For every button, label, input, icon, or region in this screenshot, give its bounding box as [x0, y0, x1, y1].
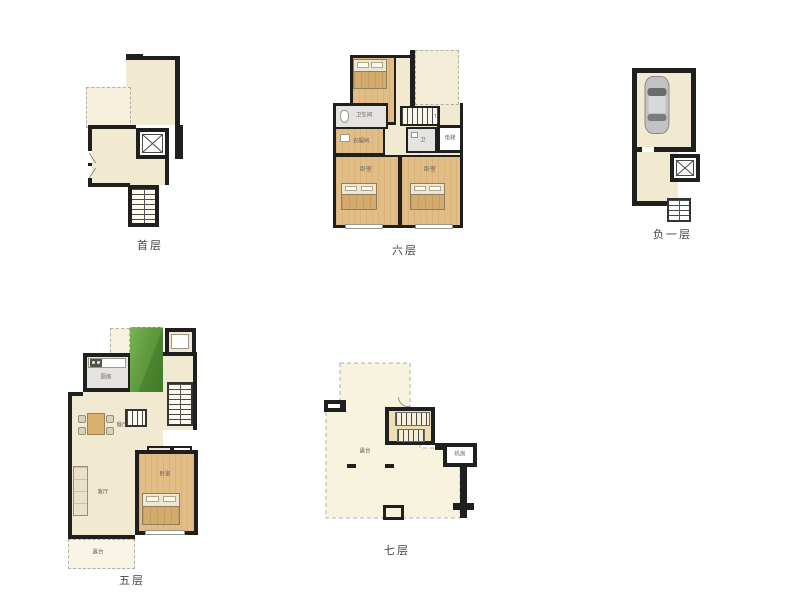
bed-icon: [353, 59, 387, 89]
floor-label-fifth: 五层: [65, 576, 199, 587]
roof-hatch: [383, 505, 404, 520]
plan-first-floor: 首层: [75, 48, 250, 248]
car-icon: [644, 75, 670, 135]
blanket-icon: [354, 71, 386, 88]
floor-label-seventh: 七层: [310, 546, 484, 557]
wall-stub: [175, 125, 183, 159]
plan-basement: 负一层: [620, 58, 725, 258]
toilet-icon: [340, 110, 349, 123]
room-entry: [88, 125, 136, 187]
plan-sixth-floor: 卧室 ↑ 卫生间 衣帽间 卫 电梯 卧室 卧室 六层: [330, 48, 465, 258]
stairs-icon: [667, 198, 691, 222]
ac-platform-icon: [171, 334, 189, 349]
elevator-x-icon: [676, 160, 694, 176]
room-label: 电梯: [444, 136, 455, 142]
floor-label-sixth: 六层: [330, 246, 480, 257]
pillow-icon: [146, 496, 159, 502]
wall-down: [460, 467, 467, 518]
room-label: 卧室: [424, 167, 436, 173]
stairs-icon: [167, 382, 193, 426]
stairs-center-line: [679, 200, 680, 220]
elevator-x-icon: [142, 134, 163, 153]
floorplan-sheet: { "colors": { "wall": "#1f1f1f", "floor_…: [0, 0, 800, 600]
burner-icon: [97, 361, 100, 364]
room-label: 卧室: [159, 472, 170, 478]
garden-shade: [130, 328, 163, 392]
room-label: 露台: [359, 449, 370, 455]
room-label: 客厅: [97, 490, 108, 496]
chair-icon: [106, 415, 114, 423]
pillow-icon: [357, 62, 369, 68]
garden-terrace: [130, 327, 163, 392]
corridor: [130, 159, 169, 185]
floor-mark: [347, 464, 356, 468]
wall-cross: [453, 503, 474, 510]
plan-seventh-floor: 机房 露台 七层: [310, 360, 540, 560]
dashed-open-area: [86, 87, 131, 128]
dashed-terrace: [415, 50, 459, 105]
floor-label-first: 首层: [75, 241, 225, 252]
stairs-center-line: [144, 189, 145, 223]
blanket-icon: [143, 506, 179, 524]
window: [145, 530, 185, 535]
sink-icon: [411, 132, 418, 138]
sofa-icon: [73, 466, 88, 516]
blanket-icon: [342, 194, 376, 210]
vent-box: [324, 400, 346, 412]
pillow-icon: [429, 186, 441, 191]
floor-label-basement: 负一层: [620, 230, 725, 241]
floor-mark: [385, 464, 394, 468]
bed-icon: [142, 493, 180, 525]
pillow-icon: [163, 496, 176, 502]
bed-icon: [410, 183, 445, 210]
pillow-icon: [345, 186, 357, 191]
window: [345, 224, 383, 229]
room-label: 卧室: [360, 167, 372, 173]
elevator-shaft: [670, 154, 700, 182]
room-label: 卫: [420, 138, 426, 144]
vent-slot: [328, 404, 340, 408]
wall-stub: [435, 443, 443, 450]
room-label: 露台: [92, 550, 103, 556]
chair-icon: [78, 415, 86, 423]
window: [415, 224, 453, 229]
elevator-shaft: [136, 128, 169, 159]
dining-table-icon: [87, 413, 105, 435]
stairs-icon: [125, 409, 147, 427]
room-upper-hall: [126, 56, 180, 125]
pillow-icon: [361, 186, 373, 191]
room-label: 卫生间: [356, 113, 373, 119]
bed-icon: [341, 183, 377, 210]
chair-icon: [78, 427, 86, 435]
burner-icon: [92, 361, 95, 364]
stove-icon: [90, 359, 102, 367]
chair-icon: [106, 427, 114, 435]
room-label: 机房: [454, 452, 465, 458]
stairs-center-line: [180, 384, 181, 424]
stairs-icon: [397, 429, 425, 442]
stairs-icon: [128, 185, 159, 227]
stairs-icon: [395, 412, 430, 426]
blanket-icon: [411, 194, 444, 210]
shelf-icon: [340, 134, 350, 142]
stairs-icon: ↑: [400, 106, 440, 126]
wall-stub: [68, 392, 83, 396]
pillow-icon: [414, 186, 426, 191]
pillow-icon: [371, 62, 383, 68]
room-label: 厨房: [100, 375, 111, 381]
plan-fifth-floor: 厨房 餐厅 卫 衣帽 客厅 卧室 露台 五层: [65, 325, 240, 595]
room-label: 衣帽间: [353, 139, 370, 145]
stairs-up-arrow: ↑: [434, 113, 438, 120]
